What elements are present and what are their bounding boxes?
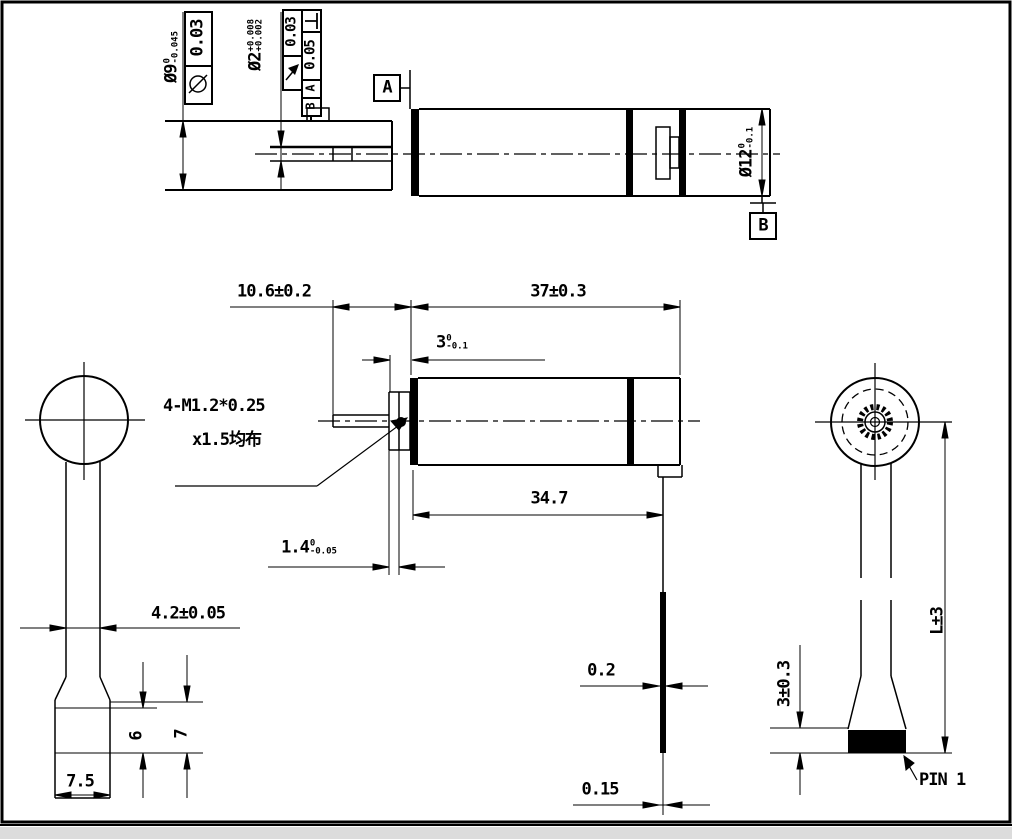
dim-front-length: 10.6±0.2 <box>237 284 311 301</box>
datum-a-label: A <box>382 80 391 97</box>
dia9-tolerance-label: Ø90-0.045 <box>164 31 181 83</box>
pin1-label: PIN 1 <box>919 772 965 789</box>
dim-total-length: L±3 <box>930 607 947 635</box>
dim-connector-1: 6 <box>129 731 146 740</box>
dim-body-length: 34.7 <box>531 491 568 508</box>
middle-side-view <box>318 378 700 815</box>
dim-connector-width: 7.5 <box>66 774 94 791</box>
perpendicularity-icon <box>305 13 317 29</box>
middle-view-dimensions <box>175 300 710 808</box>
dim-motor-length: 37±0.3 <box>530 284 585 301</box>
drawing-canvas <box>0 0 1012 839</box>
top-side-view <box>165 108 780 196</box>
front-view-dimensions <box>20 625 240 798</box>
dim-pin-block: 3±0.3 <box>777 661 794 707</box>
circular-runout-icon <box>286 64 299 80</box>
dim-connector-2: 7 <box>174 729 191 738</box>
dia2-tolerance-label: Ø2+0.008+0.002 <box>248 19 265 71</box>
dim-washer-2: 0.15 <box>582 782 619 799</box>
dim-plate-thickness: 1.40-0.05 <box>281 540 337 557</box>
fcf-datum-1: A <box>303 84 320 91</box>
datum-a-flag <box>374 70 410 109</box>
dim-cable-width: 4.2±0.05 <box>151 606 225 623</box>
screw-note-line2: x1.5均布 <box>192 432 261 449</box>
screw-note-line1: 4-M1.2*0.25 <box>163 398 265 415</box>
dia12-tolerance-label: Ø120-0.1 <box>739 127 756 177</box>
fcf-runout-value: 0.03 <box>284 17 301 47</box>
engineering-drawing-sheet: Ø90-0.045 0.03 Ø2+0.008+0.002 0.03 0.05 … <box>0 0 1012 839</box>
cylindricity-icon <box>189 75 207 93</box>
dim-pinion-length: 30-0.1 <box>436 335 468 352</box>
fcf-datum-2: B <box>303 102 320 109</box>
fcf-cylindricity-value: 0.03 <box>190 20 207 57</box>
rear-view <box>770 363 952 753</box>
datum-b-label: B <box>758 218 767 235</box>
fcf-perpendicularity-value: 0.05 <box>303 40 320 70</box>
dim-washer-1: 0.2 <box>587 663 615 680</box>
